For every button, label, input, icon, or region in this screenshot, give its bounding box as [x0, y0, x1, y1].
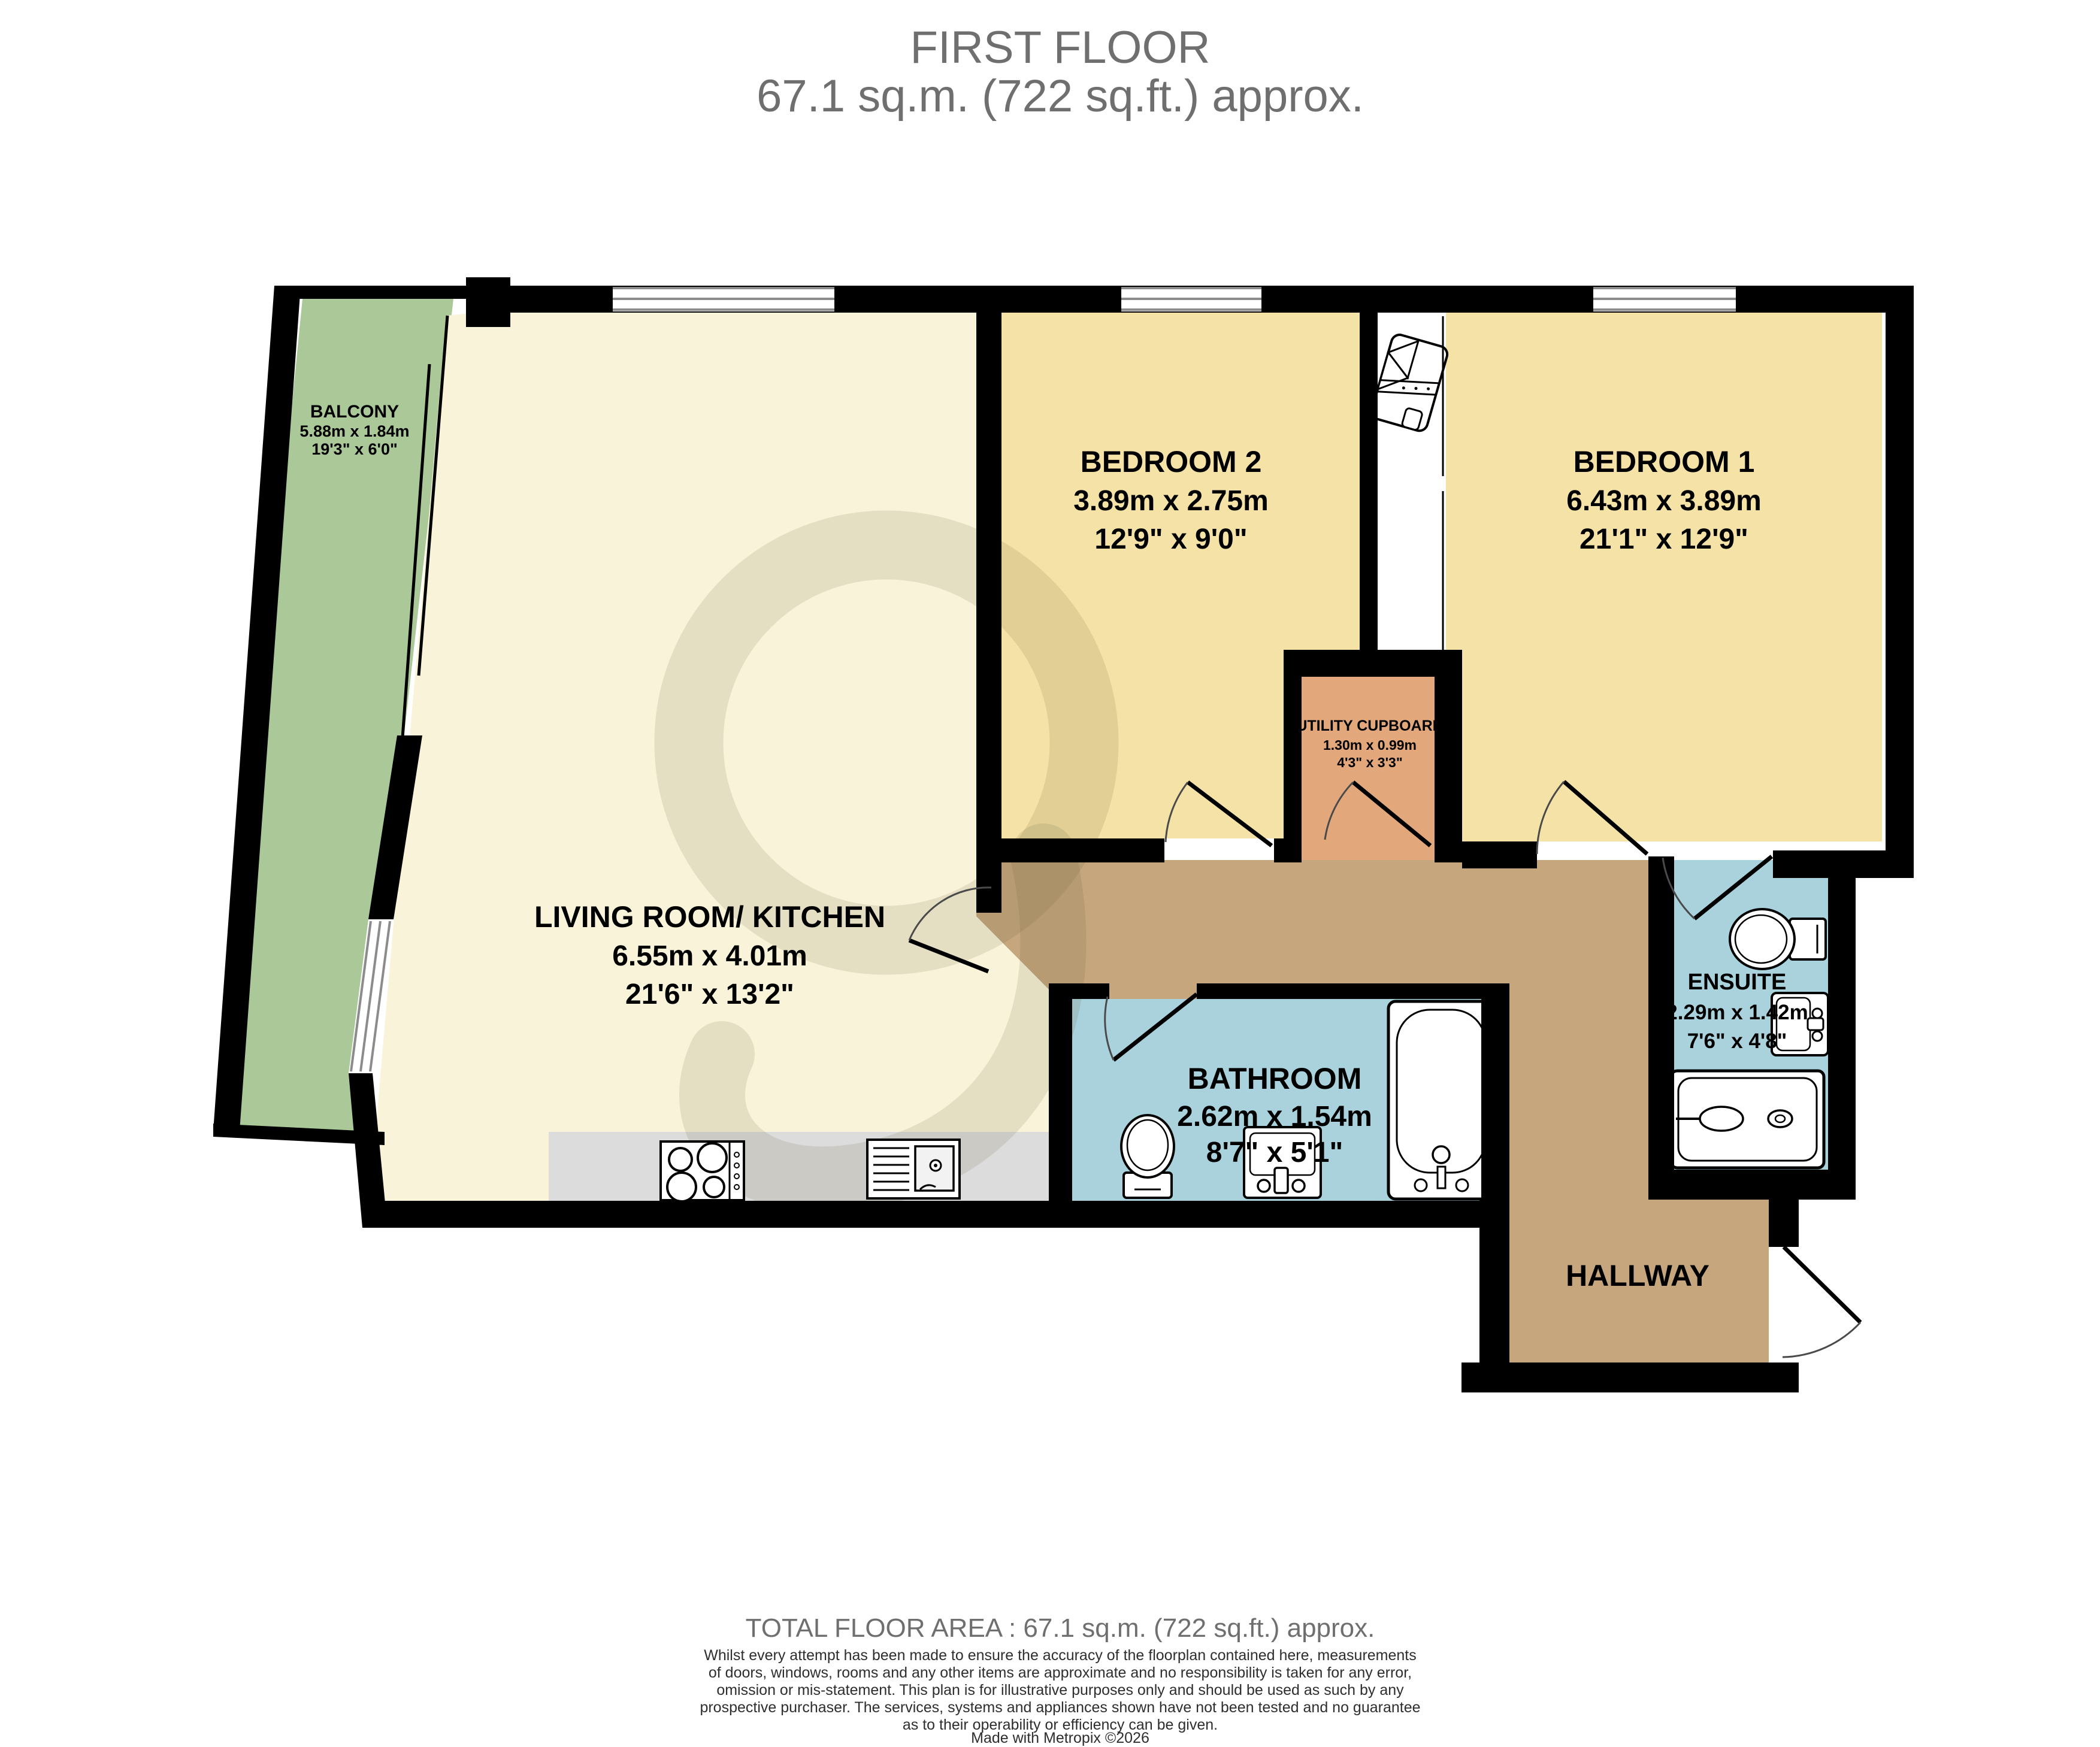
balcony-label: BALCONY — [310, 402, 399, 422]
shower-bath-icon — [1671, 1071, 1824, 1168]
bathroom-label: BATHROOM — [1188, 1062, 1362, 1095]
bedroom1-floor — [1446, 313, 1882, 841]
utility-cupboard-dims-metric: 1.30m x 0.99m — [1323, 737, 1417, 753]
credit-line: Made with Metropix ©2026 — [971, 1730, 1149, 1746]
disclaimer-line-4: prospective purchaser. The services, sys… — [700, 1699, 1420, 1716]
bathroom-dims-metric: 2.62m x 1.54m — [1177, 1101, 1372, 1133]
entrance-door-icon — [1783, 1247, 1860, 1357]
living-room-kitchen-dims-imperial: 21'6" x 13'2" — [625, 979, 794, 1010]
bedroom2-label: BEDROOM 2 — [1081, 445, 1262, 479]
bedroom1-dims-imperial: 21'1" x 12'9" — [1579, 523, 1748, 555]
ensuite-dims-imperial: 7'6" x 4'8" — [1687, 1030, 1787, 1053]
total-floor-area: TOTAL FLOOR AREA : 67.1 sq.m. (722 sq.ft… — [746, 1613, 1375, 1643]
floorplan-canvas: BALCONY 5.88m x 1.84m 19'3" x 6'0" LIVIN… — [0, 0, 2100, 1747]
living-room-kitchen-label: LIVING ROOM/ KITCHEN — [534, 900, 885, 934]
floorplan-page: BALCONY 5.88m x 1.84m 19'3" x 6'0" LIVIN… — [0, 0, 2100, 1747]
bathtub-icon — [1388, 1001, 1494, 1199]
utility-cupboard-label: UTILITY CUPBOARD — [1296, 717, 1443, 734]
bedroom2-dims-imperial: 12'9" x 9'0" — [1094, 523, 1247, 555]
bedroom1-dims-metric: 6.43m x 3.89m — [1566, 485, 1762, 517]
disclaimer-line-3: omission or mis-statement. This plan is … — [716, 1682, 1404, 1698]
balcony-dims-imperial: 19'3" x 6'0" — [311, 440, 398, 458]
utility-cupboard-dims-imperial: 4'3" x 3'3" — [1337, 755, 1403, 770]
bathroom-dims-imperial: 8'7" x 5'1" — [1206, 1137, 1343, 1168]
hob-icon — [661, 1142, 744, 1201]
disclaimer-line-1: Whilst every attempt has been made to en… — [704, 1647, 1417, 1664]
bedroom1-label: BEDROOM 1 — [1574, 445, 1755, 479]
living-room-kitchen-dims-metric: 6.55m x 4.01m — [612, 940, 807, 972]
window-icon-bedroom2 — [1121, 287, 1261, 311]
page-title: FIRST FLOOR — [910, 22, 1210, 73]
ensuite-toilet-icon — [1730, 909, 1826, 969]
ensuite-label: ENSUITE — [1688, 970, 1787, 995]
balcony-dims-metric: 5.88m x 1.84m — [299, 422, 409, 440]
kitchen-sink-icon — [867, 1140, 960, 1198]
ensuite-dims-metric: 2.29m x 1.42m — [1666, 1001, 1808, 1024]
window-icon-living — [613, 287, 834, 311]
page-subtitle: 67.1 sq.m. (722 sq.ft.) approx. — [757, 71, 1364, 122]
bedroom2-dims-metric: 3.89m x 2.75m — [1073, 485, 1269, 517]
hallway-label: HALLWAY — [1566, 1259, 1709, 1292]
bathroom-toilet-icon — [1121, 1115, 1174, 1198]
window-icon-bedroom1 — [1593, 287, 1736, 311]
corridor-floor-lower — [1509, 999, 1648, 1200]
disclaimer-line-2: of doors, windows, rooms and any other i… — [709, 1664, 1412, 1681]
